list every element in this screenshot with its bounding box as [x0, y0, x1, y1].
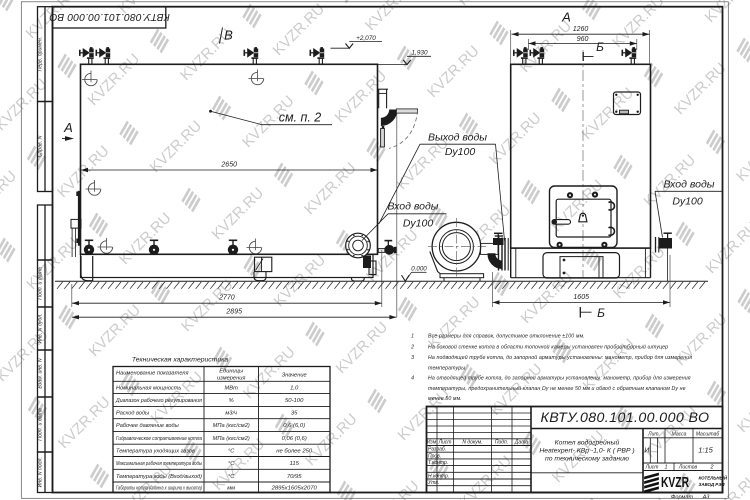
svg-text:менее 50 мм.: менее 50 мм. — [428, 396, 462, 402]
svg-text:МВт: МВт — [225, 386, 239, 392]
svg-text:70/95: 70/95 — [287, 474, 302, 480]
svg-text:Т.контр.: Т.контр. — [428, 460, 448, 466]
svg-text:Dy100: Dy100 — [445, 146, 476, 158]
svg-text:Подп. и дата: Подп. и дата — [38, 267, 44, 300]
svg-text:Вход воды: Вход воды — [388, 201, 439, 213]
svg-text:Перв. примен.: Перв. примен. — [38, 37, 44, 71]
svg-text:1:15: 1:15 — [698, 446, 713, 455]
svg-text:не более 250: не более 250 — [276, 449, 313, 455]
svg-text:1: 1 — [664, 465, 667, 471]
svg-text:КОТЕЛЬНЫЙ: КОТЕЛЬНЫЙ — [699, 476, 728, 481]
svg-text:Dy100: Dy100 — [403, 218, 434, 230]
svg-text:Справ. N: Справ. N — [38, 135, 44, 157]
svg-text:Гидравлическое сопративление к: Гидравлическое сопративление котла — [116, 436, 202, 442]
svg-text:°С: °С — [228, 449, 235, 455]
svg-text:Разраб.: Разраб. — [428, 447, 446, 453]
svg-text:Расход воды: Расход воды — [116, 411, 149, 417]
svg-text:1260: 1260 — [573, 26, 589, 33]
svg-text:измерения: измерения — [217, 375, 245, 381]
svg-text:Выход воды: Выход воды — [428, 132, 487, 144]
svg-text:В: В — [224, 28, 233, 43]
svg-text:Техническая характеристика: Техническая характеристика — [132, 356, 228, 363]
svg-text:1: 1 — [411, 334, 414, 340]
svg-text:1605: 1605 — [573, 294, 589, 301]
svg-text:Heatexpert- КВр -1,0- К ( РВР: Heatexpert- КВр -1,0- К ( РВР ) — [539, 448, 634, 455]
svg-text:Н.контр.: Н.контр. — [428, 474, 449, 480]
svg-text:Пров.: Пров. — [428, 453, 441, 459]
svg-text:+2,070: +2,070 — [356, 35, 376, 42]
svg-text:960: 960 — [577, 36, 589, 43]
svg-text:Лист: Лист — [645, 465, 659, 471]
svg-text:2: 2 — [410, 344, 414, 350]
svg-text:А: А — [63, 120, 73, 135]
svg-text:°С: °С — [228, 461, 235, 467]
svg-text:°С: °С — [228, 474, 235, 480]
svg-text:см. п. 2: см. п. 2 — [279, 111, 322, 125]
svg-text:На подводящей трубе котла, д: На подводящей трубе котла, до запорной а… — [428, 354, 692, 361]
svg-text:Б: Б — [597, 306, 605, 320]
svg-text:Подп.: Подп. — [495, 440, 508, 446]
svg-text:1,0: 1,0 — [290, 386, 299, 392]
svg-text:температуры, предохранительный: температуры, предохранительный клапан Dу… — [428, 385, 686, 392]
svg-text:А3: А3 — [702, 494, 711, 500]
svg-text:2895: 2895 — [225, 309, 242, 316]
svg-text:Температура воды (Вход/выход): Температура воды (Вход/выход) — [116, 474, 202, 480]
svg-text:N докум.: N докум. — [462, 440, 482, 446]
svg-text:Инв. N подл.: Инв. N подл. — [37, 457, 43, 487]
svg-text:А: А — [561, 10, 571, 25]
svg-text:Утв.: Утв. — [428, 480, 439, 486]
svg-text:Габариты котла (длинна х ширин: Габариты котла (длинна х ширина х высота… — [116, 485, 202, 491]
svg-text:Листов: Листов — [678, 465, 698, 471]
svg-text:Рабочее давление воды: Рабочее давление воды — [116, 423, 179, 429]
svg-text:На боковой стенке котла в обла: На боковой стенке котла в области топочн… — [428, 343, 668, 350]
svg-text:м3/ч: м3/ч — [225, 411, 237, 417]
svg-text:Все размеры для справок, допус: Все размеры для справок, допустимое откл… — [428, 334, 585, 340]
svg-text:2770: 2770 — [218, 295, 235, 302]
svg-text:0,6 (6,0): 0,6 (6,0) — [283, 423, 305, 429]
svg-text:ЗАВОД РЭП: ЗАВОД РЭП — [699, 482, 726, 487]
svg-text:МПа (кгс/см2): МПа (кгс/см2) — [213, 436, 250, 442]
svg-text:Б: Б — [596, 40, 604, 54]
svg-text:Вход воды: Вход воды — [664, 179, 715, 191]
svg-text:мм: мм — [227, 485, 235, 491]
svg-text:Dy100: Dy100 — [672, 196, 703, 208]
svg-text:температуры.: температуры. — [428, 365, 467, 371]
svg-text:Дата: Дата — [514, 440, 528, 446]
svg-text:Инв. N дубл.: Инв. N дубл. — [38, 313, 44, 343]
svg-text:1,930: 1,930 — [412, 50, 428, 57]
svg-text:0,06 (0,6): 0,06 (0,6) — [282, 436, 307, 442]
svg-text:Лит.: Лит. — [647, 432, 660, 438]
svg-text:2895х1605х2070: 2895х1605х2070 — [271, 485, 318, 491]
svg-text:Котел водогрейный: Котел водогрейный — [555, 439, 620, 447]
svg-text:Значение: Значение — [282, 373, 307, 379]
svg-text:Изм: Изм — [427, 440, 437, 446]
svg-text:%: % — [229, 398, 234, 404]
svg-text:МПа (кгс/см2): МПа (кгс/см2) — [213, 423, 250, 429]
svg-text:Максимальная рабочая температу: Максимальная рабочая температура воды — [116, 461, 202, 467]
svg-text:Единицы: Единицы — [219, 368, 244, 374]
svg-text:2650: 2650 — [220, 162, 237, 169]
svg-text:Взам. инв. N: Взам. инв. N — [38, 358, 44, 388]
svg-text:КВТУ.080.101.00.000 ВО: КВТУ.080.101.00.000 ВО — [541, 410, 710, 426]
svg-text:Лист: Лист — [438, 440, 452, 446]
svg-text:Подп. и дата: Подп. и дата — [38, 408, 44, 441]
svg-text:0.000: 0.000 — [411, 265, 427, 272]
svg-text:Температура уходящих газов: Температура уходящих газов — [116, 449, 195, 455]
svg-text:KVZR: KVZR — [661, 474, 689, 491]
svg-text:На отводящей трубе котла, до з: На отводящей трубе котла, до запорной ар… — [428, 375, 691, 382]
svg-text:Масштаб: Масштаб — [696, 432, 720, 438]
svg-text:по техническому заданию: по техническому заданию — [545, 455, 629, 463]
svg-text:КВТУ.080.101.00.000 ВО: КВТУ.080.101.00.000 ВО — [49, 11, 170, 22]
svg-text:35: 35 — [291, 411, 298, 417]
svg-text:Номинальная мощность: Номинальная мощность — [116, 386, 181, 392]
svg-text:Наименование показателя: Наименование показателя — [116, 371, 189, 377]
svg-text:Диапазон рабочего регулировани: Диапазон рабочего регулирования — [115, 398, 202, 404]
svg-text:115: 115 — [290, 461, 300, 467]
svg-text:Формат: Формат — [671, 494, 694, 500]
svg-text:2: 2 — [709, 465, 713, 471]
svg-text:50-100: 50-100 — [285, 398, 304, 404]
svg-text:3: 3 — [411, 355, 414, 361]
svg-text:4: 4 — [411, 376, 414, 382]
svg-text:Масса: Масса — [672, 432, 687, 438]
